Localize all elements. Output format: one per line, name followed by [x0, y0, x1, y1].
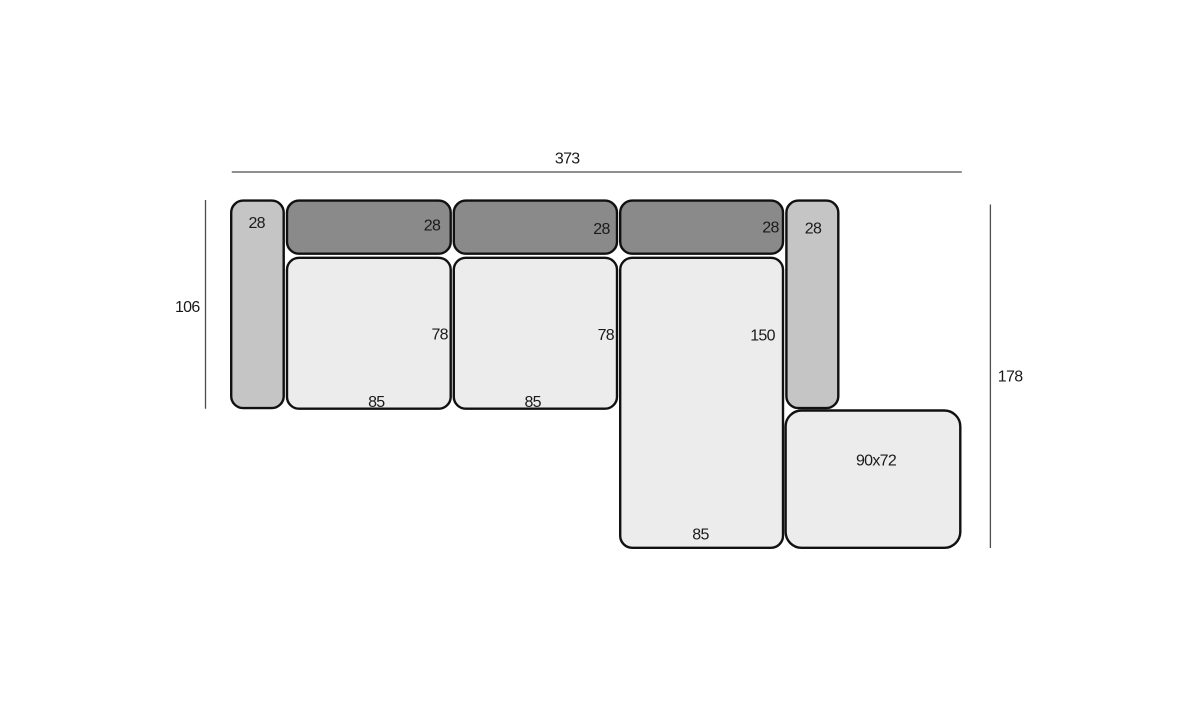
svg-text:85: 85: [524, 394, 541, 411]
svg-text:85: 85: [368, 394, 385, 411]
svg-text:178: 178: [998, 369, 1023, 386]
svg-text:28: 28: [762, 220, 779, 237]
svg-text:150: 150: [750, 327, 775, 344]
svg-text:28: 28: [805, 221, 822, 238]
svg-text:78: 78: [598, 327, 615, 344]
svg-text:373: 373: [555, 151, 580, 168]
svg-text:90x72: 90x72: [856, 452, 897, 469]
svg-text:28: 28: [593, 221, 610, 238]
svg-text:85: 85: [692, 526, 709, 543]
svg-text:78: 78: [431, 327, 448, 344]
svg-text:28: 28: [424, 217, 441, 234]
svg-text:28: 28: [248, 215, 265, 232]
svg-text:106: 106: [175, 299, 200, 316]
